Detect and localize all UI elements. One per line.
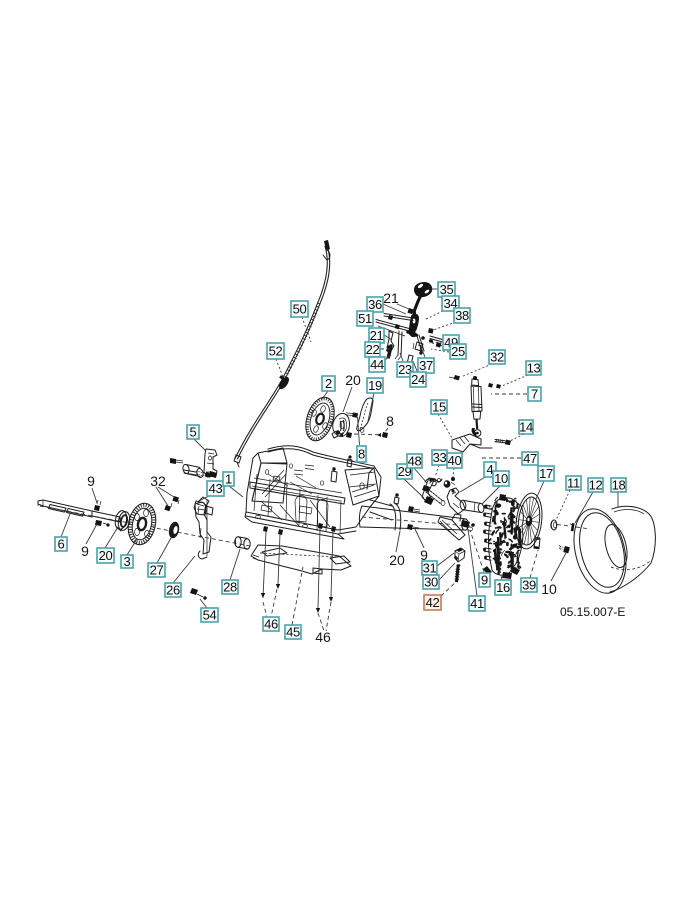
svg-text:14: 14 — [519, 420, 533, 435]
svg-text:21: 21 — [370, 328, 384, 343]
svg-text:50: 50 — [293, 302, 307, 317]
svg-text:40: 40 — [448, 453, 462, 468]
svg-text:9: 9 — [81, 543, 89, 559]
svg-text:3: 3 — [124, 554, 131, 569]
svg-text:39: 39 — [522, 578, 536, 593]
svg-text:9: 9 — [420, 547, 428, 563]
svg-text:41: 41 — [470, 596, 484, 611]
svg-text:12: 12 — [589, 478, 603, 493]
svg-text:25: 25 — [451, 344, 465, 359]
svg-text:27: 27 — [150, 563, 164, 578]
svg-text:52: 52 — [269, 344, 283, 359]
svg-text:9: 9 — [481, 573, 488, 588]
svg-text:6: 6 — [58, 537, 65, 552]
svg-text:16: 16 — [496, 580, 510, 595]
svg-text:17: 17 — [539, 466, 553, 481]
svg-text:30: 30 — [424, 575, 438, 590]
svg-text:32: 32 — [150, 473, 166, 489]
svg-text:05.15.007-E: 05.15.007-E — [560, 605, 625, 619]
svg-text:22: 22 — [366, 342, 380, 357]
svg-text:48: 48 — [408, 454, 422, 469]
svg-text:24: 24 — [411, 372, 425, 387]
svg-text:8: 8 — [386, 413, 394, 429]
svg-text:36: 36 — [368, 297, 382, 312]
svg-text:35: 35 — [440, 282, 454, 297]
svg-text:38: 38 — [455, 308, 469, 323]
svg-text:33: 33 — [433, 450, 447, 465]
svg-text:44: 44 — [370, 357, 384, 372]
svg-text:28: 28 — [223, 580, 237, 595]
svg-text:20: 20 — [99, 548, 113, 563]
svg-text:10: 10 — [494, 471, 508, 486]
svg-text:9: 9 — [87, 473, 95, 489]
svg-text:21: 21 — [383, 290, 399, 306]
svg-text:47: 47 — [523, 451, 537, 466]
svg-text:8: 8 — [358, 447, 365, 462]
svg-text:2: 2 — [325, 376, 332, 391]
svg-text:46: 46 — [315, 629, 331, 645]
svg-text:51: 51 — [358, 311, 372, 326]
svg-text:54: 54 — [203, 608, 217, 623]
svg-text:11: 11 — [567, 476, 580, 491]
svg-text:37: 37 — [419, 358, 433, 373]
svg-text:32: 32 — [490, 350, 504, 365]
svg-text:7: 7 — [531, 387, 538, 402]
svg-text:19: 19 — [368, 378, 382, 393]
svg-text:5: 5 — [190, 425, 197, 440]
svg-text:13: 13 — [527, 361, 541, 376]
svg-text:15: 15 — [432, 400, 446, 415]
svg-text:26: 26 — [166, 583, 180, 598]
svg-text:42: 42 — [426, 595, 440, 610]
svg-text:10: 10 — [541, 581, 557, 597]
svg-text:1: 1 — [225, 472, 232, 487]
svg-text:20: 20 — [345, 372, 361, 388]
svg-text:20: 20 — [389, 552, 405, 568]
svg-text:45: 45 — [286, 625, 300, 640]
svg-text:46: 46 — [264, 617, 278, 632]
svg-text:18: 18 — [612, 478, 626, 493]
svg-text:43: 43 — [209, 481, 223, 496]
